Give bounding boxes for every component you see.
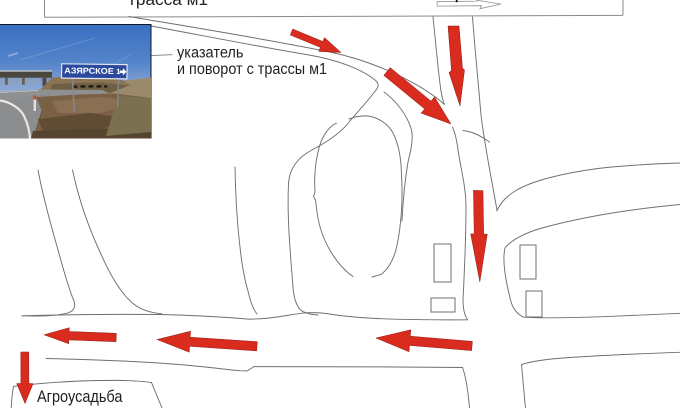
- svg-text:и поворот с трассы м1: и поворот с трассы м1: [177, 61, 327, 78]
- svg-text:Агроусадьба: Агроусадьба: [37, 387, 123, 406]
- svg-text:трасса м1: трасса м1: [128, 0, 208, 9]
- svg-text:АЗЯРСКОЕ: АЗЯРСКОЕ: [64, 65, 114, 76]
- svg-text:указатель: указатель: [177, 45, 244, 62]
